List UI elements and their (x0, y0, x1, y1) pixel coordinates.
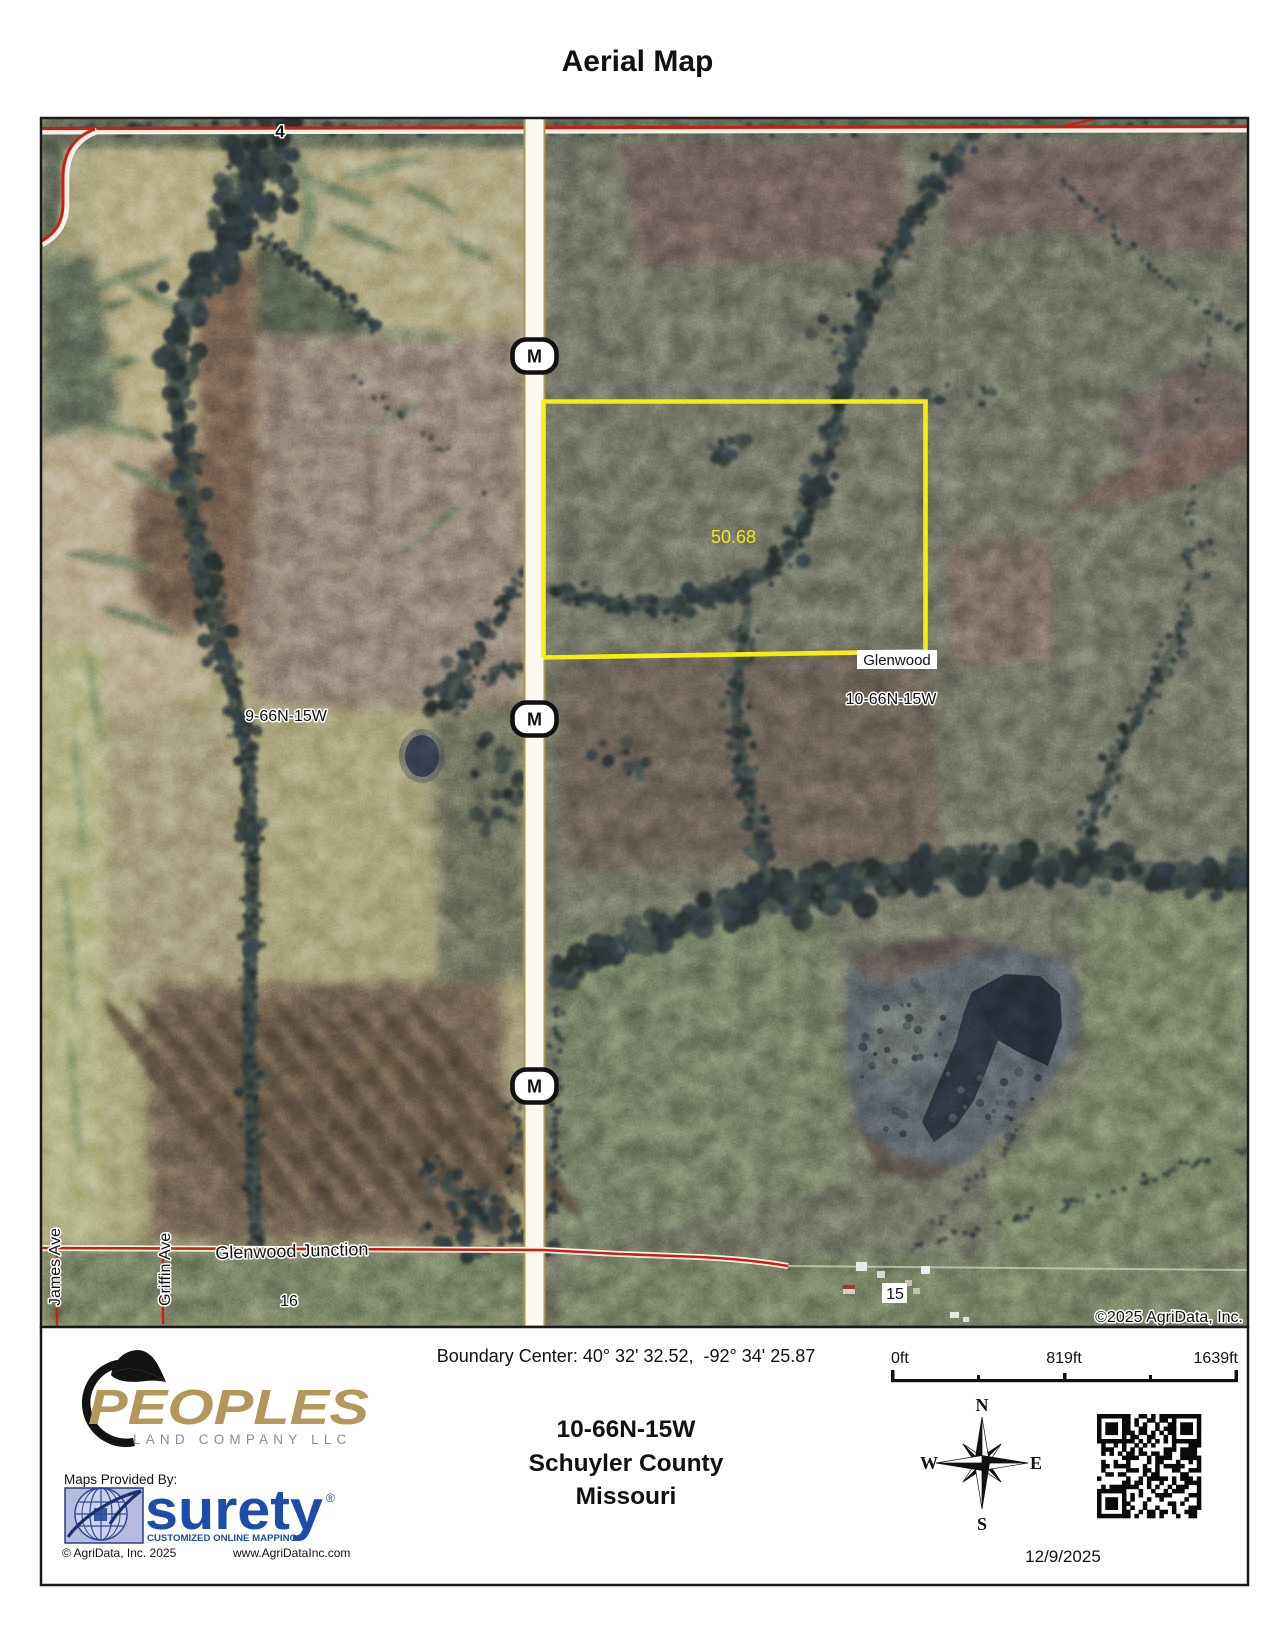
svg-text:0ft: 0ft (891, 1350, 909, 1367)
svg-text:© AgriData, Inc. 2025: © AgriData, Inc. 2025 (62, 1546, 177, 1560)
svg-text:PEOPLES: PEOPLES (88, 1381, 369, 1435)
svg-text:S: S (977, 1514, 987, 1534)
svg-text:LAND COMPANY LLC: LAND COMPANY LLC (133, 1432, 352, 1447)
svg-text:Boundary Center: 40° 32' 32.52: Boundary Center: 40° 32' 32.52, -92° 34'… (437, 1346, 816, 1366)
svg-text:N: N (976, 1395, 989, 1415)
svg-text:819ft: 819ft (1046, 1350, 1082, 1367)
svg-text:12/9/2025: 12/9/2025 (1025, 1547, 1101, 1566)
svg-text:Schuyler County: Schuyler County (529, 1450, 724, 1477)
svg-text:CUSTOMIZED ONLINE MAPPING: CUSTOMIZED ONLINE MAPPING (147, 1533, 297, 1544)
svg-text:E: E (1030, 1453, 1042, 1473)
svg-text:W: W (920, 1453, 938, 1473)
svg-text:10-66N-15W: 10-66N-15W (557, 1416, 697, 1443)
svg-text:1639ft: 1639ft (1194, 1350, 1239, 1367)
svg-text:www.AgriDataInc.com: www.AgriDataInc.com (232, 1546, 350, 1560)
svg-text:Missouri: Missouri (576, 1483, 677, 1510)
svg-text:®: ® (326, 1491, 335, 1505)
